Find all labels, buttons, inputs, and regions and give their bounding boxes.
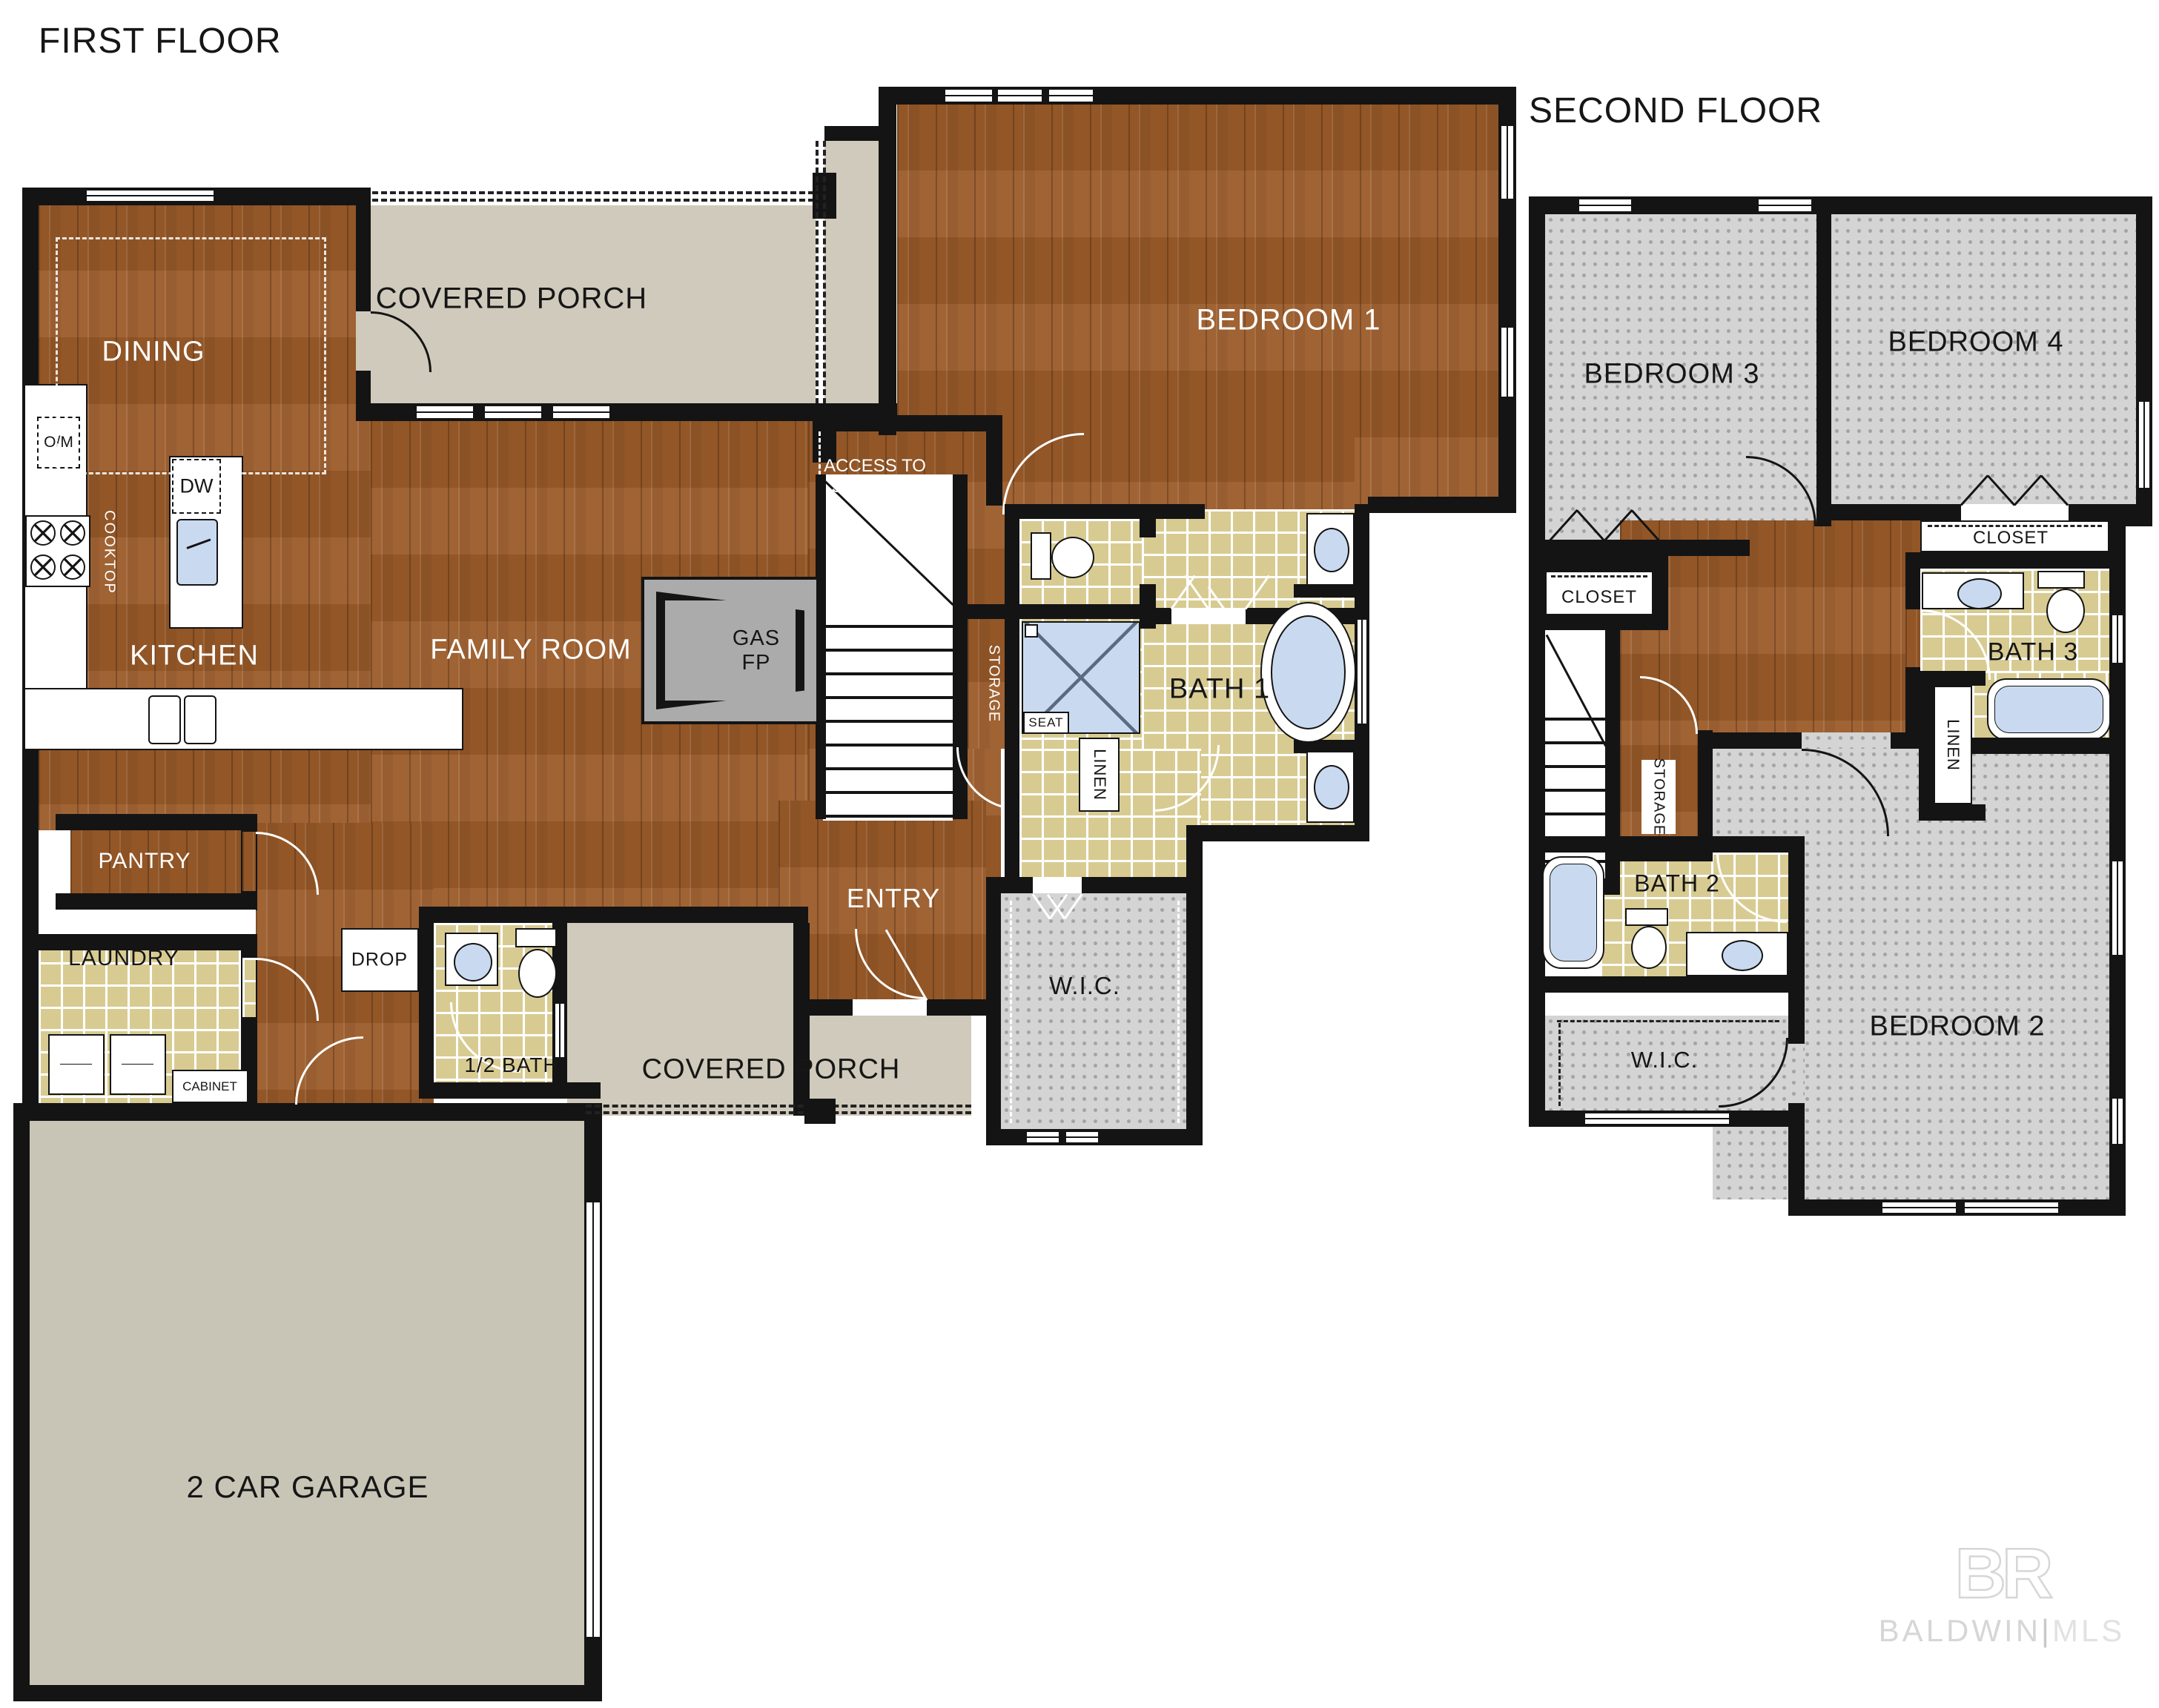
closet-rod-dashed [1928, 525, 2102, 527]
window [944, 88, 993, 103]
door-opening [242, 832, 256, 891]
toilet-tank [1031, 532, 1051, 580]
wall [1816, 196, 1831, 526]
wall [1005, 604, 1142, 619]
bedroom2-label: BEDROOM 2 [1869, 1011, 2045, 1043]
closet-rod-dashed [1177, 901, 1180, 1123]
wall [1919, 804, 1986, 821]
second-floor-title: SECOND FLOOR [1529, 90, 1822, 131]
closet-rod-dashed [1558, 1023, 1561, 1106]
window [996, 88, 1043, 103]
sink [1314, 528, 1349, 572]
wall [1653, 540, 1668, 630]
window [552, 405, 611, 420]
door-opening [1788, 1044, 1805, 1103]
baldwin-logo-icon: BR [1854, 1542, 2150, 1606]
wall [986, 877, 1001, 1145]
bathtub-water [1994, 686, 2103, 733]
divider-bar: | [2041, 1613, 2052, 1648]
stair-treads [823, 604, 953, 821]
wall [1005, 504, 1019, 749]
toilet-tank [1625, 908, 1668, 926]
porch-open-edge [372, 199, 814, 202]
pantry-label: PANTRY [99, 849, 191, 874]
shower-head-icon [1025, 624, 1038, 638]
window [554, 1002, 566, 1059]
closet3-label: CLOSET [1561, 587, 1637, 608]
front-door-opening [853, 999, 927, 1016]
toilet-tank [2037, 571, 2085, 589]
dryer [110, 1034, 166, 1095]
window [1025, 1131, 1060, 1144]
closet-rod-dashed [1551, 575, 1647, 577]
gas-fp-label: GAS FP [733, 626, 780, 675]
wall [1005, 749, 1019, 878]
garage-floor [30, 1119, 584, 1685]
bath1-label: BATH 1 [1169, 674, 1270, 706]
bedroom4-floor [1831, 214, 2136, 504]
wall [13, 1103, 30, 1701]
baldwin-mls-text: BALDWIN|MLS [1854, 1613, 2150, 1649]
toilet-bowl [518, 949, 557, 998]
bath2-label: BATH 2 [1634, 870, 1720, 898]
garage-door [585, 1201, 601, 1638]
porch-post [804, 1099, 836, 1124]
door-opening [1961, 504, 2069, 520]
sink [1722, 940, 1763, 971]
porch-open-edge [372, 191, 814, 194]
bedroom1-label: BEDROOM 1 [1196, 304, 1381, 337]
storage-label: STORAGE [985, 645, 1002, 722]
bathtub-water [1271, 615, 1346, 729]
wall [1368, 497, 1516, 513]
window [415, 405, 475, 420]
window [1500, 125, 1515, 200]
mls-text: MLS [2052, 1613, 2125, 1648]
wall [1919, 671, 1934, 808]
door-opening [1905, 609, 1920, 667]
entry-label: ENTRY [847, 883, 940, 914]
wall [986, 415, 1002, 506]
wall [793, 923, 810, 1116]
porch-roof-edge [816, 141, 819, 404]
window [1963, 1201, 2060, 1214]
sink [454, 943, 492, 982]
closet4-label: CLOSET [1973, 528, 2049, 549]
window [1356, 618, 1368, 725]
wall [986, 877, 1203, 893]
window [1584, 1112, 1730, 1125]
wic1-label: W.I.C. [1049, 972, 1120, 1000]
storage2-label: STORAGE [1650, 758, 1667, 835]
wic2-label: W.I.C. [1631, 1047, 1698, 1073]
baldwin-text: BALDWIN [1879, 1613, 2041, 1648]
wall [816, 415, 1001, 431]
linen-label: LINEN [1090, 749, 1109, 801]
window [2111, 614, 2124, 664]
burner-icon [60, 520, 85, 546]
window [483, 405, 543, 420]
wall [1186, 825, 1203, 1145]
floorplan-stage: FIRST FLOOR SECOND FLOOR [0, 0, 2159, 1708]
exterior-notch [1369, 513, 1516, 624]
burner-icon [30, 555, 56, 580]
toilet-tank [515, 928, 557, 947]
wall [1294, 584, 1355, 598]
covered-porch-top-label: COVERED PORCH [376, 282, 647, 316]
wall [56, 814, 256, 830]
bathtub2 [1987, 678, 2111, 741]
burner-icon [60, 555, 85, 580]
wall [1201, 825, 1369, 841]
covered-porch-bottom-label: COVERED PORCH [642, 1054, 901, 1086]
island-sink [176, 519, 218, 586]
wall [1788, 836, 1805, 1216]
window [2111, 860, 2124, 956]
wall [56, 893, 256, 910]
wall [13, 1685, 602, 1701]
family-room-label: FAMILY ROOM [430, 635, 631, 666]
baldwin-mls-watermark: BR BALDWIN|MLS [1854, 1542, 2150, 1675]
window [1578, 198, 1633, 213]
toilet-bowl [1631, 926, 1667, 969]
wall [824, 126, 879, 141]
wall [1529, 836, 1788, 853]
wall [1972, 738, 2126, 754]
wall [1545, 556, 1653, 571]
kitchen-sink-bowl [148, 695, 181, 744]
window [2111, 1097, 2124, 1145]
access-storage-label: ACCESS TO STORAGE [824, 456, 926, 497]
wic1-floor [1001, 893, 1186, 1145]
dw-label: DW [180, 475, 214, 498]
gas-fireplace-firebox [656, 592, 804, 709]
door-opening [1171, 608, 1246, 624]
porch-open-edge [586, 1111, 971, 1114]
toilet-bowl [1051, 537, 1094, 578]
half-bath-label: 1/2 BATH [464, 1053, 558, 1077]
bathtub3 [1542, 856, 1604, 969]
bathtub-water [1550, 864, 1597, 961]
window [1065, 1131, 1100, 1144]
door-opening [356, 311, 371, 371]
washer [48, 1034, 105, 1095]
kitchen-counter-bottom [24, 688, 463, 750]
cabinet-label: CABINET [182, 1079, 237, 1094]
wall [419, 923, 434, 1099]
kitchen-label: KITCHEN [130, 640, 259, 672]
wall [879, 87, 896, 435]
seat-label: SEAT [1028, 715, 1063, 730]
wall [419, 907, 808, 923]
sink [1957, 578, 2002, 609]
cooktop-label: COOKTOP [101, 510, 118, 595]
door-opening [242, 958, 256, 1017]
closet-rod-dashed [1010, 901, 1012, 1123]
bedroom4-label: BEDROOM 4 [1888, 327, 2063, 359]
sink [1314, 765, 1349, 810]
wall [1529, 976, 1788, 993]
window [1500, 326, 1515, 398]
wall [419, 1082, 601, 1099]
first-floor-title: FIRST FLOOR [39, 21, 281, 62]
door-opening [1802, 732, 1891, 749]
window [1048, 88, 1094, 103]
garage-label: 2 CAR GARAGE [186, 1469, 429, 1505]
wall [1545, 540, 1750, 556]
window [1757, 198, 1813, 213]
kitchen-sink-bowl [184, 695, 216, 744]
porch-open-edge [586, 1105, 971, 1108]
drop-label: DROP [351, 950, 408, 971]
wall [1005, 504, 1205, 519]
toilet-bowl [2046, 589, 2085, 633]
bedroom3-label: BEDROOM 3 [1584, 359, 1759, 391]
wall [1905, 552, 2126, 569]
wall [13, 1103, 602, 1121]
wall [1545, 615, 1653, 630]
closet-rod-dashed [1557, 1020, 1779, 1022]
wall [1140, 504, 1156, 537]
window [2137, 400, 2151, 489]
covered-porch-bottom-floor-a [567, 923, 808, 1116]
blank-band [39, 910, 256, 934]
bath3-label: BATH 3 [1988, 638, 2079, 667]
porch-roof-edge [823, 141, 826, 404]
burner-icon [30, 520, 56, 546]
window [1881, 1201, 1957, 1214]
dining-label: DINING [102, 337, 205, 368]
window [85, 189, 215, 202]
blank-band [1545, 993, 1788, 1016]
linen2-label: LINEN [1943, 719, 1963, 771]
door-opening [1033, 877, 1082, 893]
laundry-label: LAUNDRY [68, 946, 179, 971]
